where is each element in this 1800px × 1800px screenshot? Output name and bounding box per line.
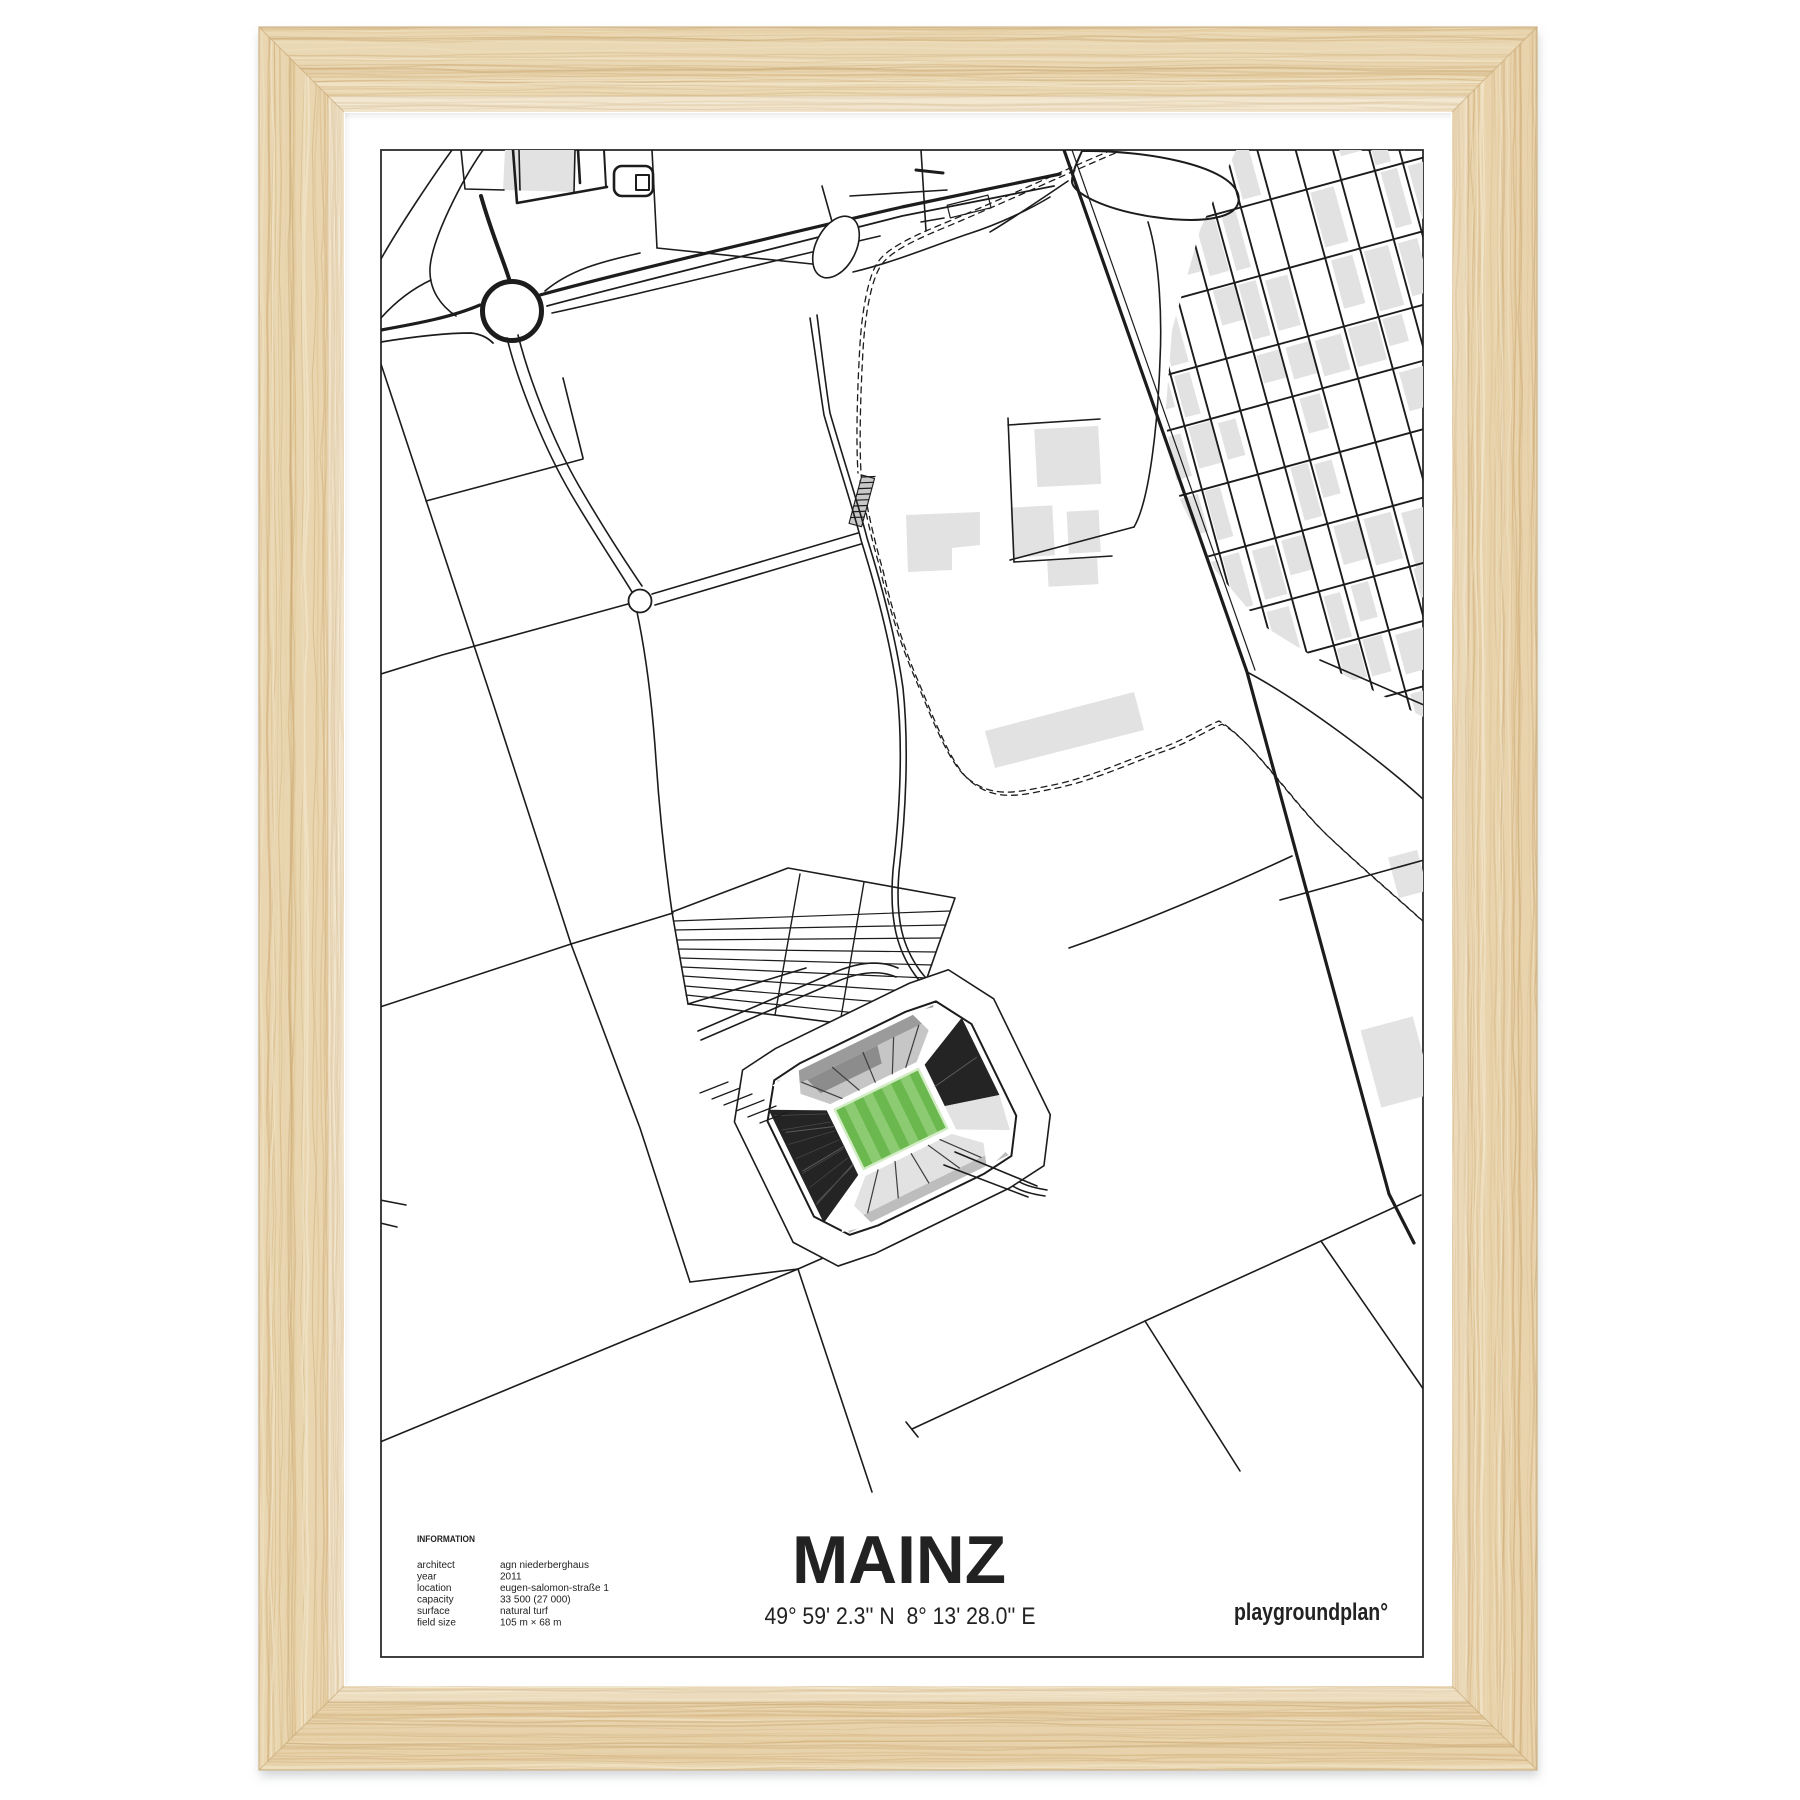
- svg-text:playgroundplan°: playgroundplan°: [1234, 1599, 1388, 1626]
- svg-text:2011: 2011: [500, 1572, 522, 1583]
- svg-text:MAINZ: MAINZ: [792, 1522, 1006, 1598]
- svg-text:agn niederberghaus: agn niederberghaus: [500, 1560, 589, 1571]
- svg-text:33 500 (27 000): 33 500 (27 000): [500, 1595, 571, 1606]
- svg-text:year: year: [417, 1572, 437, 1583]
- svg-text:field size: field size: [417, 1618, 456, 1629]
- svg-text:INFORMATION: INFORMATION: [417, 1534, 475, 1545]
- svg-text:natural turf: natural turf: [500, 1606, 548, 1617]
- svg-text:49° 59' 2.3'' N 8° 13' 28.0'': 49° 59' 2.3'' N 8° 13' 28.0'' E: [765, 1603, 1036, 1630]
- svg-text:capacity: capacity: [417, 1595, 454, 1606]
- svg-text:surface: surface: [417, 1606, 450, 1617]
- svg-text:architect: architect: [417, 1560, 455, 1571]
- svg-text:eugen-salomon-straße 1: eugen-salomon-straße 1: [500, 1583, 609, 1594]
- svg-text:105 m × 68 m: 105 m × 68 m: [500, 1618, 561, 1629]
- svg-text:location: location: [417, 1583, 451, 1594]
